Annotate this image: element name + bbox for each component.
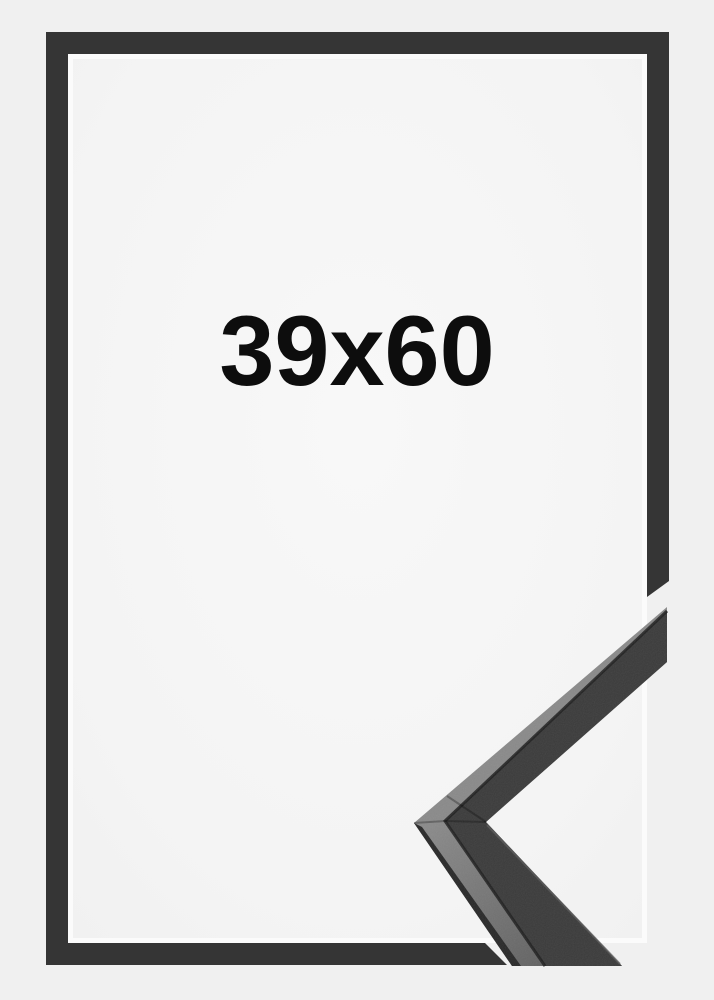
frame-top-bar bbox=[46, 32, 669, 54]
product-photo: 39x60 bbox=[0, 0, 714, 1000]
frame-border-svg bbox=[0, 0, 714, 1000]
size-label: 39x60 bbox=[0, 301, 714, 400]
frame-bottom-bar bbox=[46, 943, 507, 965]
frame-left-bar bbox=[46, 32, 68, 965]
frame-opening bbox=[68, 54, 647, 943]
